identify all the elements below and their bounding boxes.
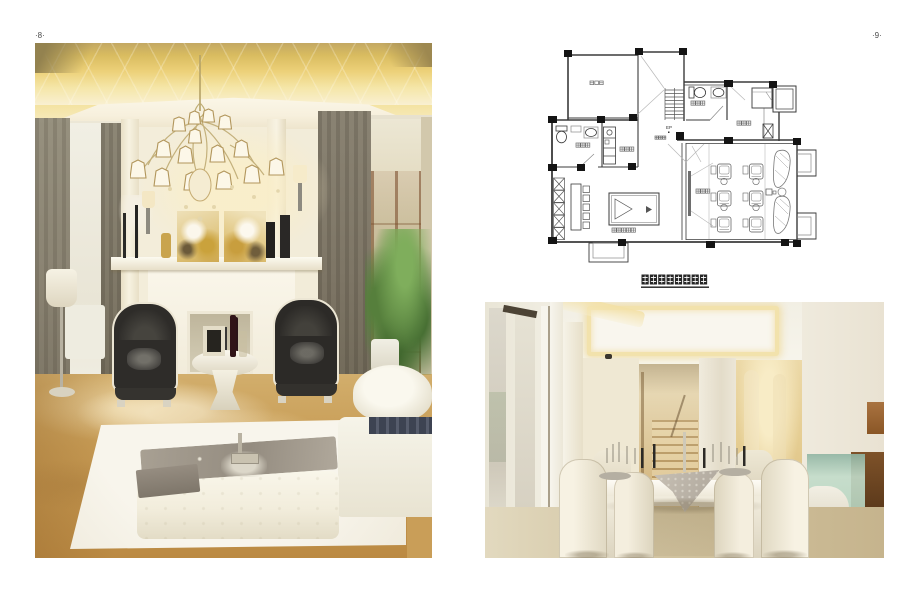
svg-text:EP: EP	[666, 125, 672, 130]
